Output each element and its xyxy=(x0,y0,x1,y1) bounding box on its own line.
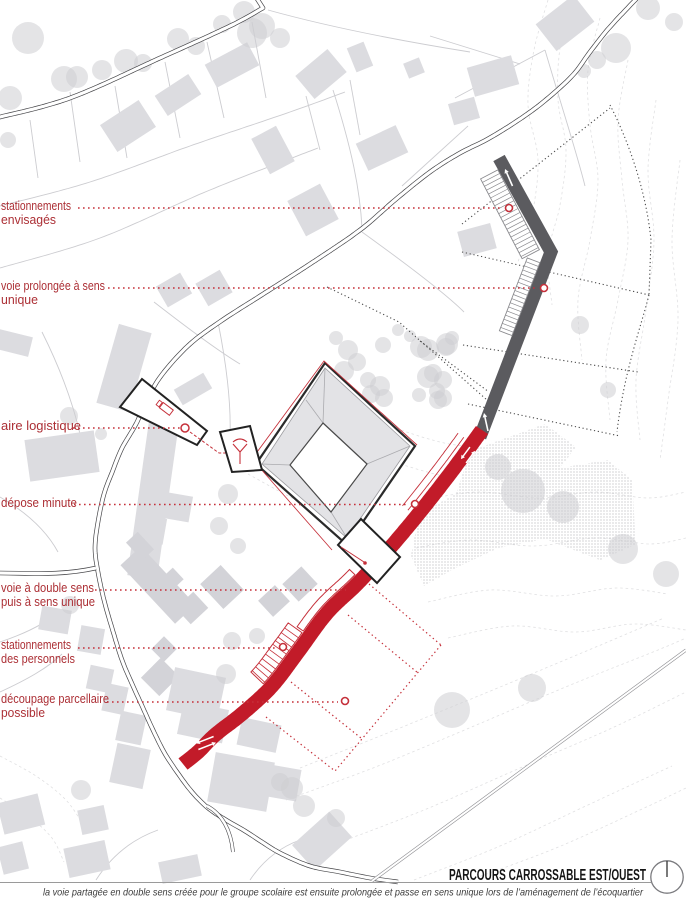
svg-text:aire logistique: aire logistique xyxy=(1,419,81,433)
svg-text:découpage parcellaire: découpage parcellaire xyxy=(1,692,109,706)
svg-text:stationnements: stationnements xyxy=(1,199,71,213)
svg-text:des personnels: des personnels xyxy=(1,652,75,666)
svg-text:envisagés: envisagés xyxy=(1,213,56,227)
svg-text:possible: possible xyxy=(1,706,45,720)
svg-text:dépose minute: dépose minute xyxy=(1,496,77,510)
svg-text:voie prolongée à sens: voie prolongée à sens xyxy=(1,279,105,293)
svg-text:unique: unique xyxy=(1,293,38,307)
svg-text:stationnements: stationnements xyxy=(1,638,71,652)
svg-text:puis à sens unique: puis à sens unique xyxy=(1,595,95,609)
svg-text:voie à double sens: voie à double sens xyxy=(1,581,94,595)
svg-text:PARCOURS CARROSSABLE EST/OUEST: PARCOURS CARROSSABLE EST/OUEST xyxy=(449,867,646,884)
svg-text:la voie partagée en double sen: la voie partagée en double sens créée po… xyxy=(43,888,644,899)
